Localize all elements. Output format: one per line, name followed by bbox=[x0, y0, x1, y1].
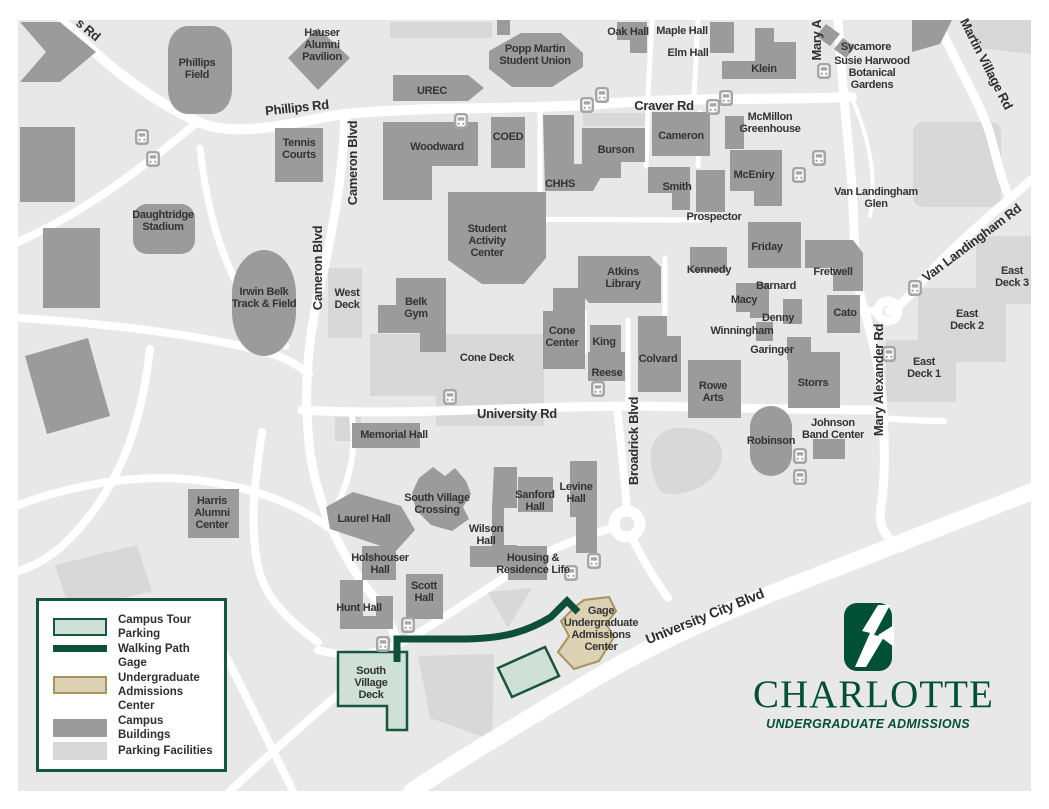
building-label-smith: Smith bbox=[662, 181, 692, 193]
bus-stop-icon bbox=[135, 129, 149, 145]
bus-stop-icon bbox=[793, 469, 807, 485]
road-label-cameron-blvd-north: Cameron Blvd bbox=[345, 120, 360, 205]
building-label-king: King bbox=[592, 336, 615, 348]
bus-stop-icon bbox=[719, 90, 733, 106]
legend-item-campus-buildings: Campus Buildings bbox=[53, 714, 214, 743]
bus-stop-icon bbox=[817, 63, 831, 79]
bus-stop-icon bbox=[595, 87, 609, 103]
legend: Campus Tour Parking Walking Path Gage Un… bbox=[36, 598, 227, 772]
building-label-student-activity-center: StudentActivityCenter bbox=[468, 223, 507, 259]
legend-item-label: Campus Tour Parking bbox=[118, 613, 214, 642]
parking-lot bbox=[390, 22, 492, 38]
deck-label-south-village-deck: SouthVillageDeck bbox=[354, 665, 387, 701]
building-label-elm-hall: Elm Hall bbox=[667, 47, 708, 59]
building bbox=[20, 127, 75, 202]
building-label-barnard: Barnard bbox=[756, 280, 796, 292]
building-label-memorial-hall: Memorial Hall bbox=[360, 429, 428, 441]
building-maple-elm-hall bbox=[710, 22, 734, 53]
building-label-winningham: Winningham bbox=[711, 325, 774, 337]
bus-stop-icon bbox=[454, 113, 468, 129]
campus-map-page: s RdPhillips RdCraver RdCameron BlvdCame… bbox=[0, 0, 1049, 809]
charlotte-wordmark: CHARLOTTE bbox=[753, 675, 983, 714]
building-label-coed: COED bbox=[493, 131, 524, 143]
tour-parking-swatch-icon bbox=[53, 618, 107, 636]
building-label-colvard: Colvard bbox=[639, 353, 678, 365]
road-label-cameron-blvd-south: Cameron Blvd bbox=[310, 225, 325, 310]
walking-path-swatch-icon bbox=[53, 645, 107, 652]
building-prospector bbox=[696, 170, 725, 212]
parking-lot bbox=[583, 113, 645, 126]
bus-stop-icon bbox=[376, 636, 390, 652]
building-label-tennis-courts: TennisCourts bbox=[282, 137, 316, 161]
building-label-hunt-hall: Hunt Hall bbox=[336, 602, 382, 614]
building-label-kennedy: Kennedy bbox=[687, 264, 733, 276]
bus-stop-icon bbox=[443, 389, 457, 405]
building-label-atkins-library: AtkinsLibrary bbox=[605, 266, 641, 290]
bus-stop-icon bbox=[812, 150, 826, 166]
building-label-fretwell: Fretwell bbox=[813, 266, 852, 278]
building-label-garinger: Garinger bbox=[750, 344, 794, 356]
bus-stop-icon bbox=[908, 280, 922, 296]
legend-item-label: Parking Facilities bbox=[118, 744, 213, 758]
building-label-cameron: Cameron bbox=[658, 130, 704, 142]
bus-stop-icon bbox=[591, 381, 605, 397]
cone-deck bbox=[370, 334, 544, 396]
building-label-maple-hall: Maple Hall bbox=[656, 25, 708, 37]
building-label-macy: Macy bbox=[731, 294, 758, 306]
bus-stop-icon bbox=[793, 448, 807, 464]
building-label-oak-hall: Oak Hall bbox=[607, 26, 649, 38]
legend-item-label: Campus Buildings bbox=[118, 714, 214, 743]
building-label-prospector: Prospector bbox=[686, 211, 742, 223]
legend-item-parking-facilities: Parking Facilities bbox=[53, 742, 214, 760]
building-label-mceniry: McEniry bbox=[734, 169, 776, 181]
building-label-denny: Denny bbox=[762, 312, 795, 324]
legend-item-walking-path: Walking Path bbox=[53, 642, 214, 656]
bus-stop-icon bbox=[706, 99, 720, 115]
bus-stop-icon bbox=[792, 167, 806, 183]
building-label-storrs: Storrs bbox=[798, 377, 829, 389]
building-label-rowe-arts: RoweArts bbox=[699, 380, 727, 404]
walkway bbox=[646, 110, 648, 166]
building-label-woodward: Woodward bbox=[410, 141, 464, 153]
building-label-irwin-belk-track-field: Irwin BelkTrack & Field bbox=[232, 286, 297, 310]
building bbox=[497, 20, 510, 35]
brand-lockup: CHARLOTTE UNDERGRADUATE ADMISSIONS bbox=[753, 603, 983, 731]
building-swatch-icon bbox=[53, 719, 107, 737]
building-label-chhs: CHHS bbox=[545, 178, 575, 190]
legend-item-gage-center: Gage Undergraduate Admissions Center bbox=[53, 656, 214, 714]
building-label-urec: UREC bbox=[417, 85, 447, 97]
building-label-laurel-hall: Laurel Hall bbox=[338, 513, 391, 525]
road-label-broadrick-blvd: Broadrick Blvd bbox=[626, 397, 641, 486]
road-label-university-rd: University Rd bbox=[477, 406, 557, 421]
road-label-craver-rd: Craver Rd bbox=[634, 98, 694, 113]
charlotte-crown-logo-icon bbox=[842, 603, 894, 671]
building-label-reese: Reese bbox=[592, 367, 623, 379]
building-label-klein: Klein bbox=[751, 63, 777, 75]
building-label-robinson: Robinson bbox=[747, 435, 796, 447]
building-label-cone-center: ConeCenter bbox=[545, 325, 579, 349]
deck-label-west-deck: WestDeck bbox=[334, 287, 360, 311]
building-label-housing-residence-life: Housing &Residence Life bbox=[496, 552, 570, 576]
building-label-friday: Friday bbox=[751, 241, 783, 253]
legend-item-label: Gage Undergraduate Admissions Center bbox=[118, 656, 214, 714]
undergraduate-admissions-tagline: UNDERGRADUATE ADMISSIONS bbox=[753, 717, 983, 731]
building-label-hauser-alumni-pavilion: HauserAlumniPavilion bbox=[302, 27, 342, 63]
road-label-mary-alexander-rd: Mary Alexander Rd bbox=[871, 324, 886, 437]
road-label-mary-a-partial: Mary A bbox=[809, 19, 824, 61]
legend-item-label: Walking Path bbox=[118, 642, 190, 656]
building-label-burson: Burson bbox=[598, 144, 635, 156]
building bbox=[43, 228, 100, 308]
building-johnson-band-center bbox=[813, 439, 845, 459]
building-label-belk-gym: BelkGym bbox=[404, 296, 428, 320]
bus-stop-icon bbox=[587, 553, 601, 569]
building-label-harris-alumni-center: HarrisAlumniCenter bbox=[194, 495, 230, 531]
building-label-cato: Cato bbox=[833, 307, 857, 319]
walkway bbox=[883, 418, 944, 421]
building-label-sycamore: Sycamore bbox=[841, 41, 891, 53]
parking-swatch-icon bbox=[53, 742, 107, 760]
building-label-popp-martin-student-union: Popp MartinStudent Union bbox=[499, 43, 571, 67]
building-label-mcmillon-greenhouse: McMillonGreenhouse bbox=[739, 111, 800, 135]
bus-stop-icon bbox=[401, 617, 415, 633]
bus-stop-icon bbox=[580, 97, 594, 113]
bus-stop-icon bbox=[146, 151, 160, 167]
gage-swatch-icon bbox=[53, 676, 107, 694]
deck-label-cone-deck: Cone Deck bbox=[460, 352, 515, 364]
legend-item-campus-tour-parking: Campus Tour Parking bbox=[53, 613, 214, 642]
